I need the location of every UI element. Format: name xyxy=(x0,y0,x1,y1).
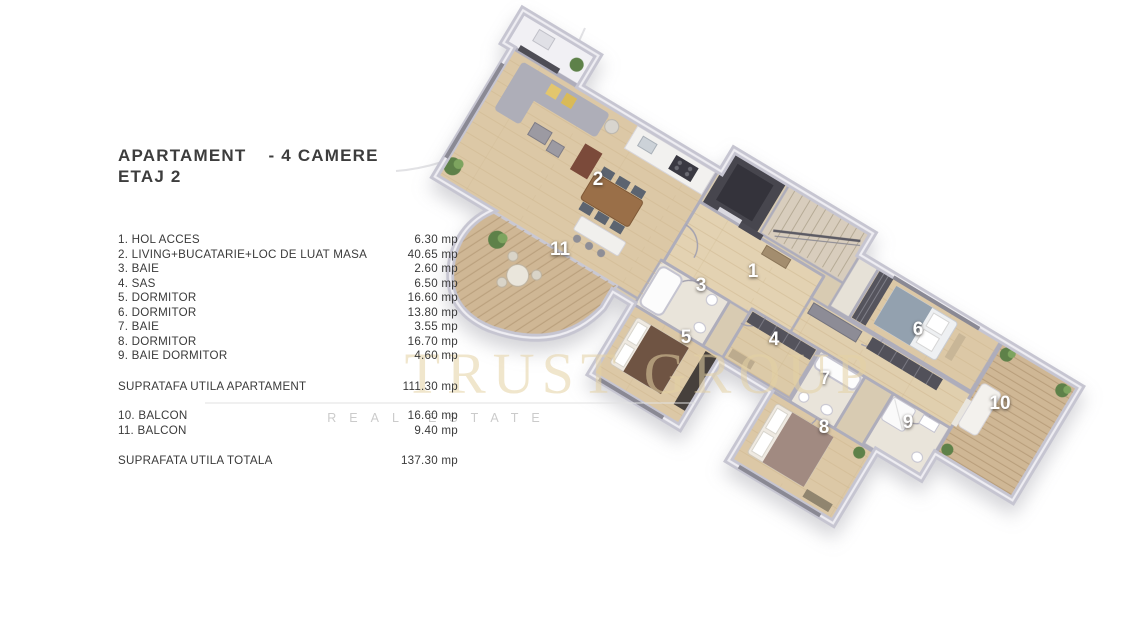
title-apartament: APARTAMENT xyxy=(118,146,246,166)
balcony-label: 10. BALCON xyxy=(118,409,188,424)
room-label: 5. DORMITOR xyxy=(118,291,197,306)
area-row: 2. LIVING+BUCATARIE+LOC DE LUAT MASA 40.… xyxy=(118,248,458,263)
area-row: 7. BAIE 3.55 mp xyxy=(118,320,458,335)
subtotal-label: SUPRATAFA UTILA APARTAMENT xyxy=(118,380,306,395)
area-row: 8. DORMITOR 16.70 mp xyxy=(118,335,458,350)
legend-panel: APARTAMENT - 4 CAMERE ETAJ 2 1. HOL ACCE… xyxy=(118,146,458,469)
room-label: 9. BAIE DORMITOR xyxy=(118,349,227,364)
room-area: 16.60 mp xyxy=(408,291,458,306)
room-area: 6.30 mp xyxy=(414,233,458,248)
room-number-6: 6 xyxy=(913,319,924,340)
area-row: 6. DORMITOR 13.80 mp xyxy=(118,306,458,321)
balcony-area: 9.40 mp xyxy=(414,424,458,439)
title-etaj: ETAJ 2 xyxy=(118,167,458,187)
room-area: 13.80 mp xyxy=(408,306,458,321)
room-area: 2.60 mp xyxy=(414,262,458,277)
room-label: 8. DORMITOR xyxy=(118,335,197,350)
room-number-2: 2 xyxy=(593,169,604,190)
room-label: 1. HOL ACCES xyxy=(118,233,200,248)
area-row: 4. SAS 6.50 mp xyxy=(118,277,458,292)
room-area: 3.55 mp xyxy=(414,320,458,335)
room-label: 4. SAS xyxy=(118,277,156,292)
room-area: 4.60 mp xyxy=(414,349,458,364)
subtotal-area: 111.30 mp xyxy=(403,380,458,395)
total-area: 137.30 mp xyxy=(401,454,458,469)
room-number-9: 9 xyxy=(903,412,914,433)
area-row: 5. DORMITOR 16.60 mp xyxy=(118,291,458,306)
page: { "header": { "title_left": "APARTAMENT"… xyxy=(0,0,1132,634)
watermark-title: TRUST GROUP xyxy=(405,341,876,406)
subtotal-row: SUPRATAFA UTILA APARTAMENT 111.30 mp xyxy=(118,380,458,395)
room-area: 40.65 mp xyxy=(408,248,458,263)
room-number-8: 8 xyxy=(819,417,830,438)
page-title: APARTAMENT - 4 CAMERE ETAJ 2 xyxy=(118,146,458,187)
balcony-label: 11. BALCON xyxy=(118,424,187,439)
area-row: 11. BALCON 9.40 mp xyxy=(118,424,458,439)
area-row: 1. HOL ACCES 6.30 mp xyxy=(118,233,458,248)
room-number-1: 1 xyxy=(748,261,759,282)
room-area: 6.50 mp xyxy=(414,277,458,292)
room-area: 16.70 mp xyxy=(408,335,458,350)
total-label: SUPRAFATA UTILA TOTALA xyxy=(118,454,273,469)
balcony-list: 10. BALCON 16.60 mp 11. BALCON 9.40 mp xyxy=(118,409,458,438)
room-number-3: 3 xyxy=(696,275,707,296)
room-label: 7. BAIE xyxy=(118,320,159,335)
room-label: 6. DORMITOR xyxy=(118,306,197,321)
area-row: 3. BAIE 2.60 mp xyxy=(118,262,458,277)
title-camere: - 4 CAMERE xyxy=(268,146,378,166)
room-number-11: 11 xyxy=(550,239,571,260)
room-label: 2. LIVING+BUCATARIE+LOC DE LUAT MASA xyxy=(118,248,367,263)
balcony-area: 16.60 mp xyxy=(408,409,458,424)
room-list: 1. HOL ACCES 6.30 mp 2. LIVING+BUCATARIE… xyxy=(118,233,458,364)
area-row: 10. BALCON 16.60 mp xyxy=(118,409,458,424)
total-row: SUPRAFATA UTILA TOTALA 137.30 mp xyxy=(118,454,458,469)
area-row: 9. BAIE DORMITOR 4.60 mp xyxy=(118,349,458,364)
apartment-plan xyxy=(373,10,1099,606)
room-label: 3. BAIE xyxy=(118,262,159,277)
room-number-10: 10 xyxy=(989,393,1010,414)
